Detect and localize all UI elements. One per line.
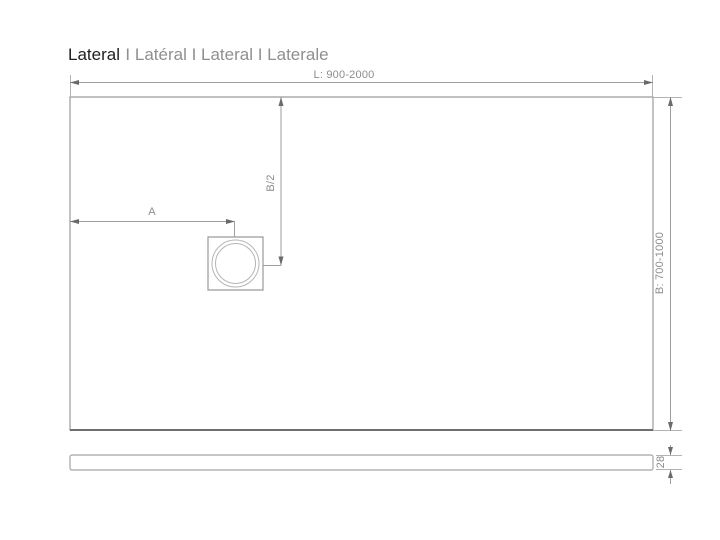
arrow-left-icon: [70, 80, 79, 85]
width-dimension: [668, 97, 673, 431]
tray-outline: [70, 97, 653, 430]
page-title-primary: Lateral: [68, 45, 120, 64]
drain: [208, 237, 263, 290]
technical-drawing-canvas: LateralI Latéral I Lateral I Laterale: [0, 0, 720, 540]
side-view: [70, 445, 682, 484]
arrow-up-icon: [668, 97, 673, 106]
top-view: [70, 75, 682, 431]
arrow-down-icon: [668, 447, 673, 455]
page-title-translations: I Latéral I Lateral I Laterale: [125, 45, 328, 64]
thickness-label: 28: [655, 456, 667, 469]
length-dimension-label: L: 900-2000: [314, 69, 375, 81]
page-title: LateralI Latéral I Lateral I Laterale: [68, 45, 329, 65]
drain-square: [208, 237, 263, 290]
arrow-down-icon: [668, 422, 673, 431]
drain-center-label: B/2: [265, 174, 277, 191]
drain-offset-label: A: [148, 206, 156, 218]
arrow-up-icon: [668, 470, 673, 478]
width-dimension-label: B: 700-1000: [654, 232, 666, 294]
arrow-right-icon: [644, 80, 653, 85]
tray-profile: [70, 455, 653, 470]
drawing-linework: [0, 0, 720, 540]
thickness-dimension: [668, 445, 673, 484]
